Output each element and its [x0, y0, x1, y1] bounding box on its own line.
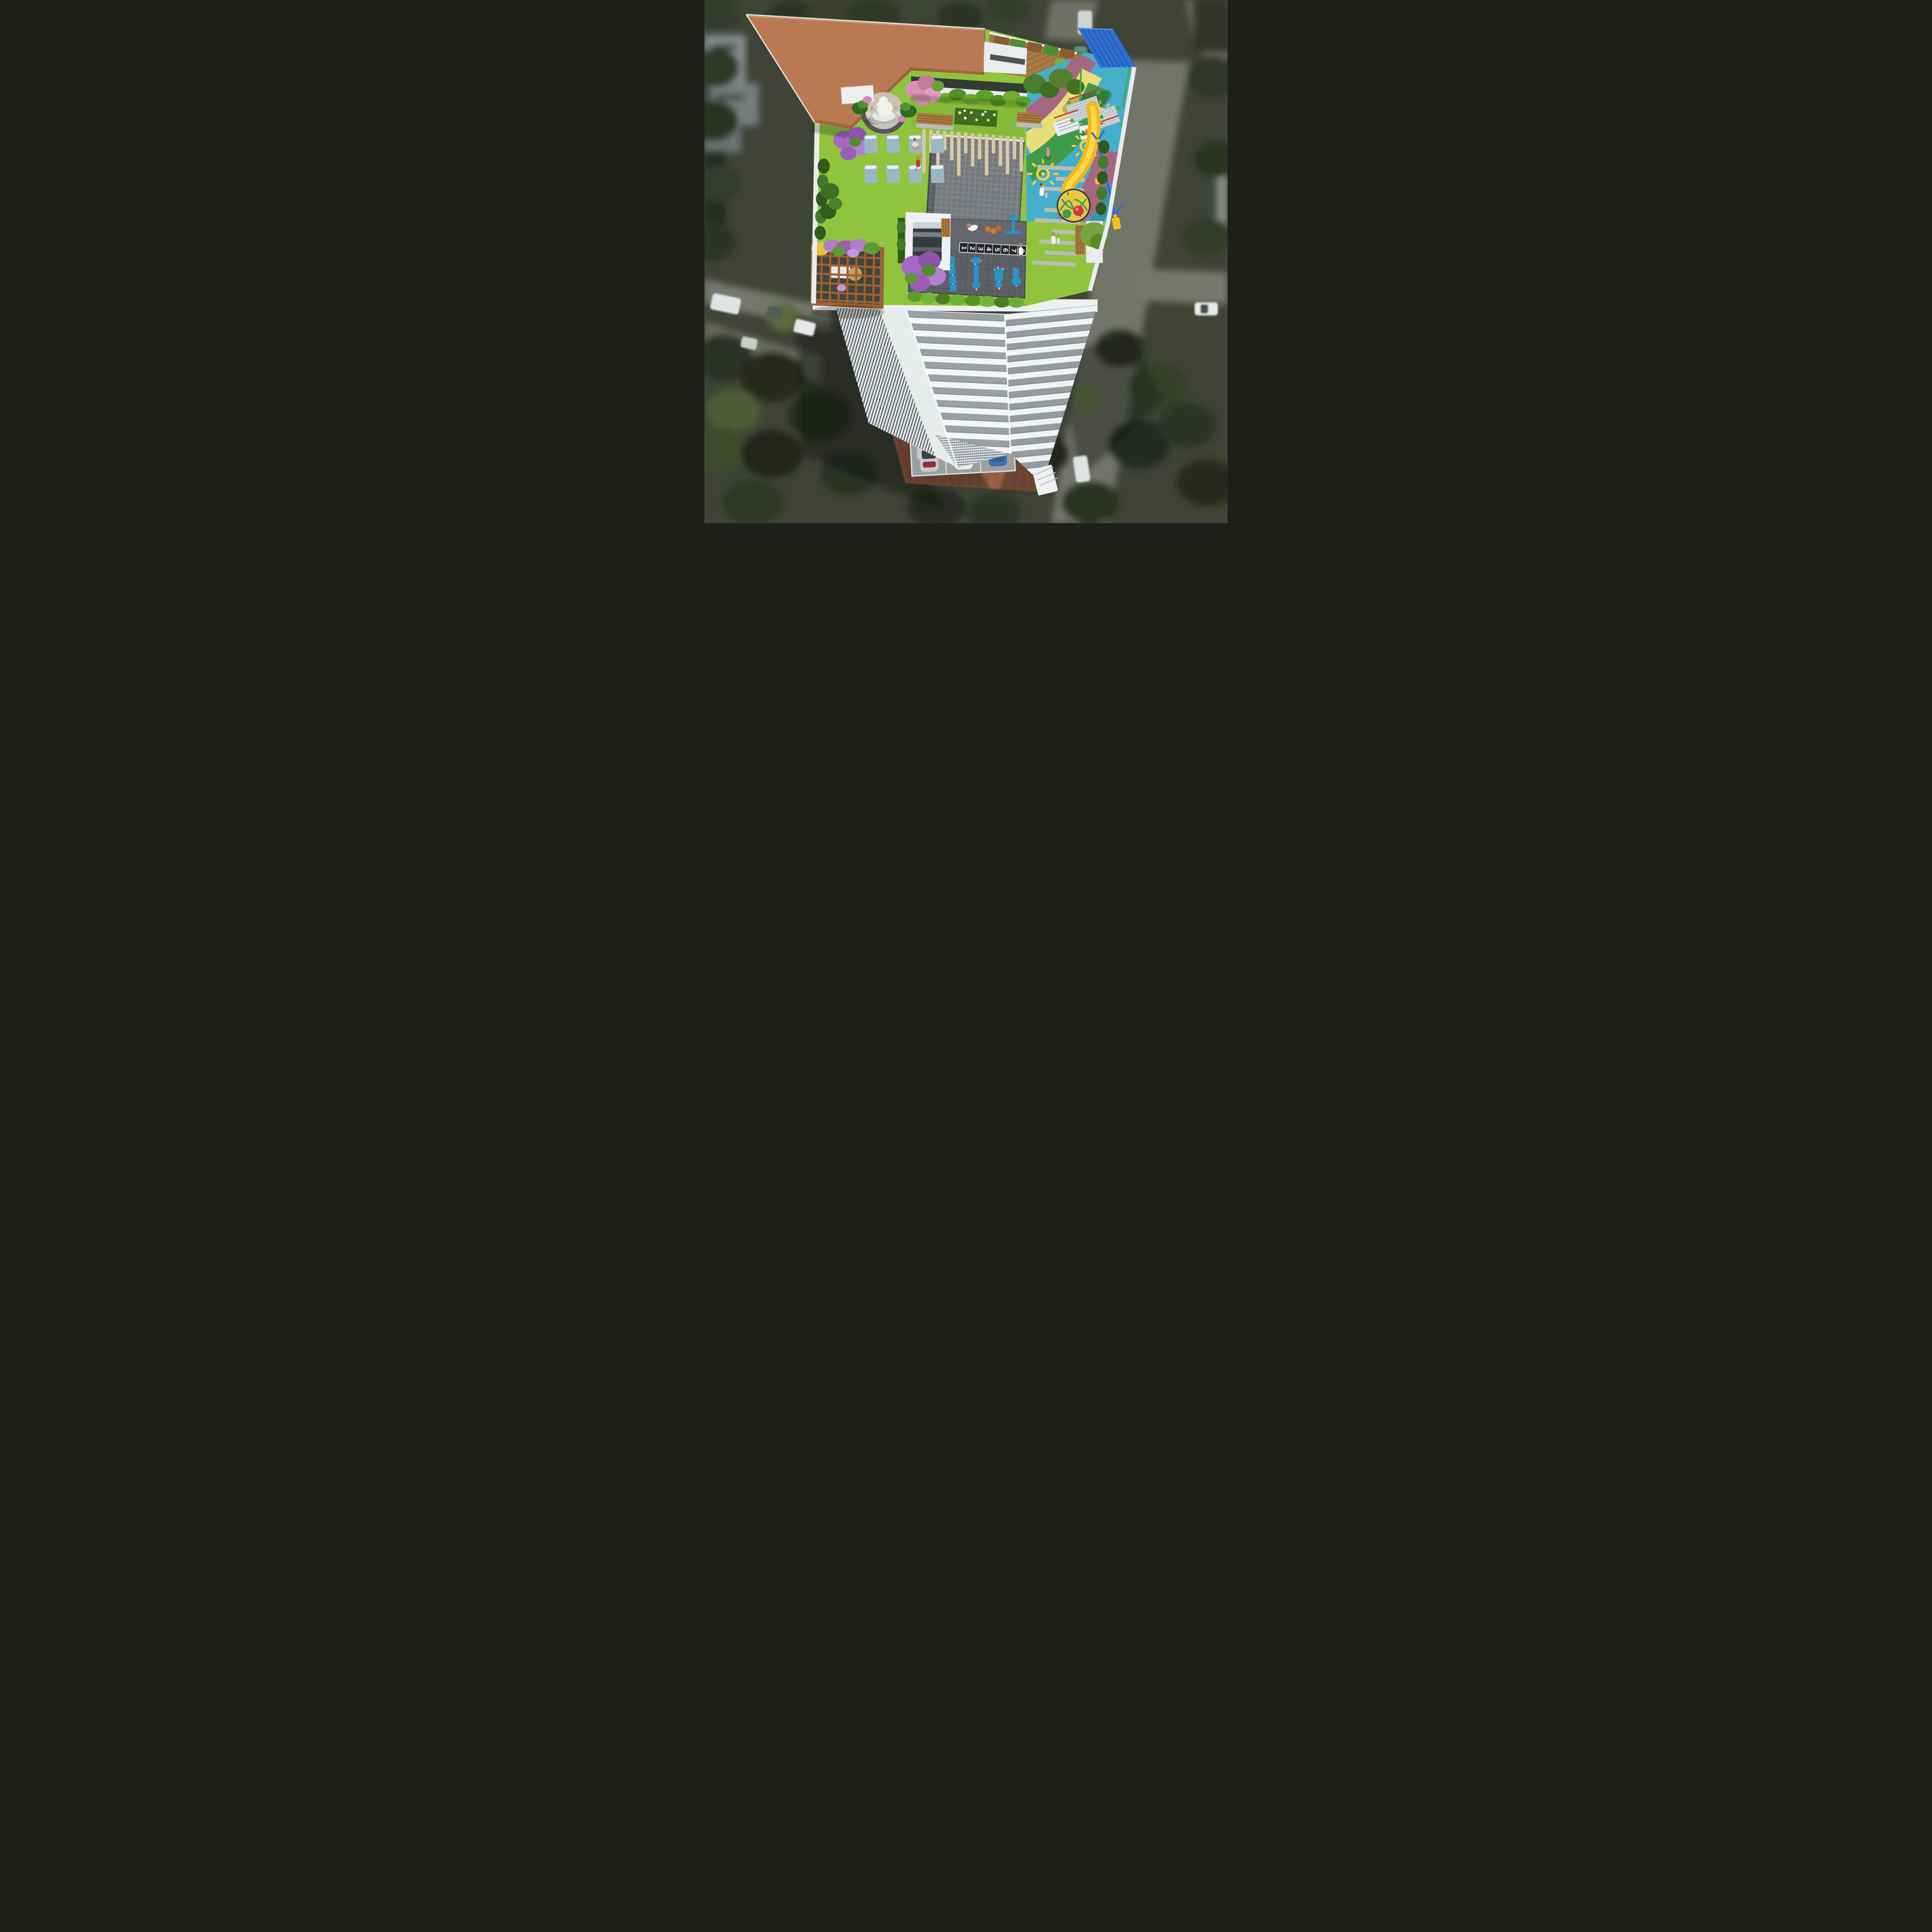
bg-building-topright — [1193, 0, 1228, 52]
stair-landing — [913, 222, 942, 229]
render-canvas: 1 2 3 4 5 6 7 8 — [704, 0, 1228, 523]
flower-planter — [954, 108, 998, 127]
child-on-rider — [1046, 150, 1050, 157]
bulkhead-bench — [941, 219, 950, 237]
hopscotch-number-4: 4 — [985, 247, 993, 252]
hedge-blob — [815, 226, 826, 240]
road-right-horizontal — [1135, 269, 1228, 304]
stair-beam — [913, 247, 942, 252]
green-tree — [821, 183, 839, 200]
person-mother — [1039, 183, 1044, 196]
hedge-blob — [818, 159, 830, 174]
hopscotch-number-6: 6 — [1002, 248, 1009, 252]
hedge-blob — [897, 221, 906, 233]
dome-climber — [1058, 189, 1090, 222]
hedge-blob — [1098, 140, 1109, 154]
trellis-pergola — [811, 239, 882, 307]
hopscotch-number-5: 5 — [993, 247, 1001, 252]
bg-window-band — [715, 95, 744, 100]
hedge-blob — [1097, 171, 1108, 184]
stair-beam — [913, 232, 942, 237]
bench — [1017, 112, 1041, 124]
person-standing — [1019, 243, 1023, 259]
hedge-blob — [897, 238, 906, 251]
hopscotch-number-2: 2 — [969, 246, 976, 251]
hedge-blob — [1096, 187, 1107, 200]
hopscotch-number-7: 7 — [1010, 248, 1018, 253]
hopscotch-number-3: 3 — [977, 247, 985, 251]
green-tree — [828, 198, 842, 210]
hedge-blob — [1096, 202, 1106, 215]
hedge-blob — [1098, 156, 1109, 169]
car-glass — [1201, 304, 1208, 314]
person-child — [1045, 192, 1048, 198]
hopscotch-number-1: 1 — [960, 245, 968, 250]
pergola-table — [848, 267, 862, 281]
aerial-render: 1 2 3 4 5 6 7 8 — [704, 0, 1228, 523]
